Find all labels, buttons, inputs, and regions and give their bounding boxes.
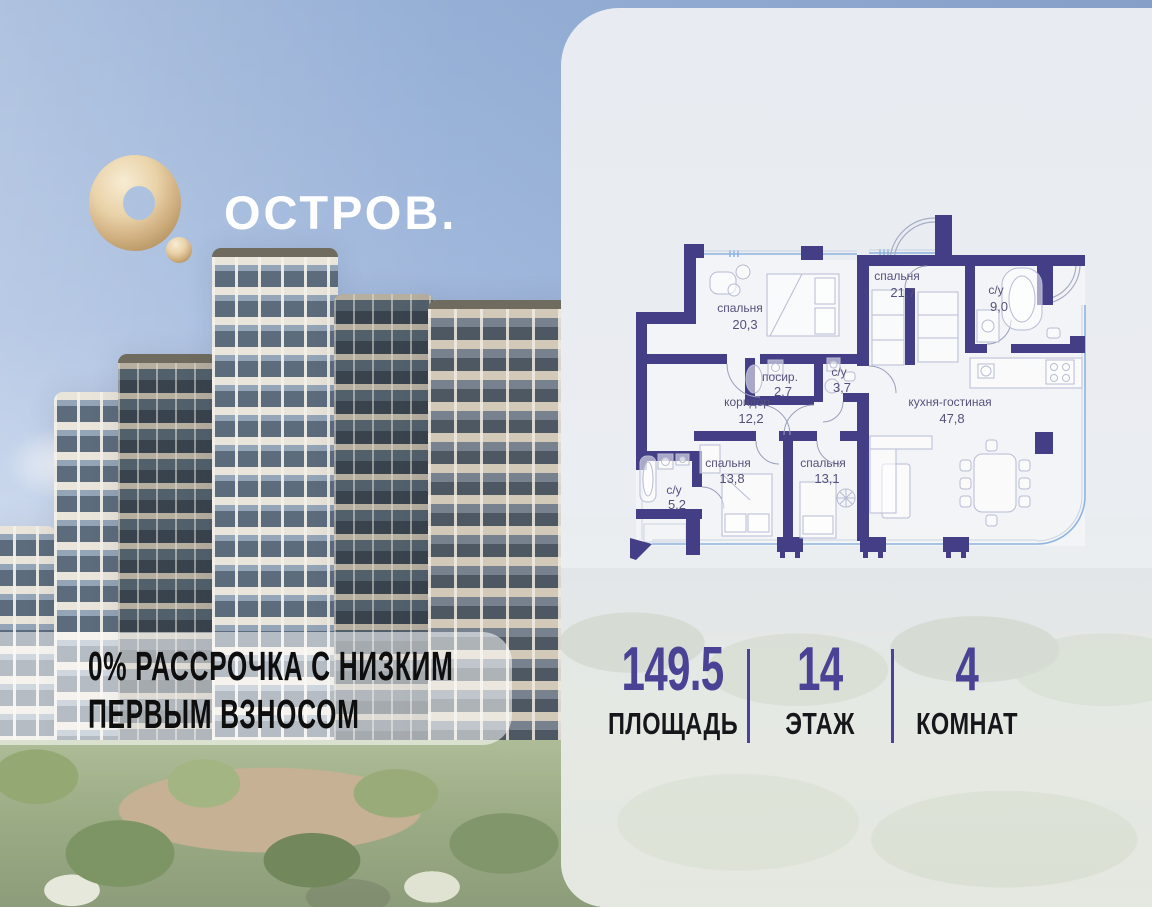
stat-rooms-value: 4 (956, 642, 979, 698)
room-name: коридор (724, 395, 770, 409)
stat-floor-label: ЭТАЖ (774, 706, 865, 742)
stat-rooms-label-text: КОМНАТ (916, 706, 1018, 742)
stats-divider (747, 649, 750, 743)
brand-name: ОСТРОВ. (224, 185, 457, 240)
stats-divider (891, 649, 894, 743)
room-area: 3,7 (833, 380, 851, 395)
stat-area-label-text: ПЛОЩАДЬ (608, 706, 738, 742)
room-area: 9,0 (990, 299, 1008, 314)
promo-line-1: 0% РАССРОЧКА С НИЗКИМ (88, 642, 359, 690)
room-name: спальня (874, 269, 920, 283)
park-landscape (0, 740, 600, 907)
room-name: с/у (831, 365, 846, 379)
room-area: 5,2 (668, 497, 686, 512)
promo-banner: 0% РАССРОЧКА С НИЗКИМ ПЕРВЫМ ВЗНОСОМ (0, 632, 512, 745)
room-name: с/у (988, 283, 1003, 297)
stat-floor: 14 ЭТАЖ (774, 642, 865, 742)
promo-poster: ОСТРОВ. 0% РАССРОЧКА С НИЗКИМ ПЕРВЫМ ВЗН… (0, 0, 1152, 907)
room-name: спальня (717, 301, 763, 315)
room-name: спальня (800, 456, 846, 470)
promo-line-2: ПЕРВЫМ ВЗНОСОМ (88, 690, 359, 738)
stat-area-label: ПЛОЩАДЬ (587, 706, 758, 742)
room-name: посир. (762, 370, 798, 384)
room-area: 2,7 (774, 384, 792, 399)
stat-floor-value: 14 (797, 642, 843, 698)
room-area: 13,8 (719, 471, 744, 486)
room-name: кухня-гостиная (908, 395, 991, 409)
stat-rooms-label: КОМНАТ (900, 706, 1034, 742)
logo-ring-icon (86, 152, 196, 266)
room-area: 12,2 (738, 411, 763, 426)
stat-floor-label-text: ЭТАЖ (785, 706, 855, 742)
room-area: 13,1 (814, 471, 839, 486)
stat-area: 149.5 ПЛОЩАДЬ (587, 642, 758, 742)
floor-plan: спальня 20,3 спальня 21,7 с/у 9,0 посир.… (630, 208, 1090, 564)
room-name: спальня (705, 456, 751, 470)
room-name: с/у (666, 483, 681, 497)
stat-area-value: 149.5 (622, 642, 724, 698)
room-area: 20,3 (732, 317, 757, 332)
room-area: 21,7 (890, 285, 915, 300)
brand-logo: ОСТРОВ. (86, 152, 457, 266)
room-area: 47,8 (939, 411, 964, 426)
stat-rooms: 4 КОМНАТ (900, 642, 1034, 742)
